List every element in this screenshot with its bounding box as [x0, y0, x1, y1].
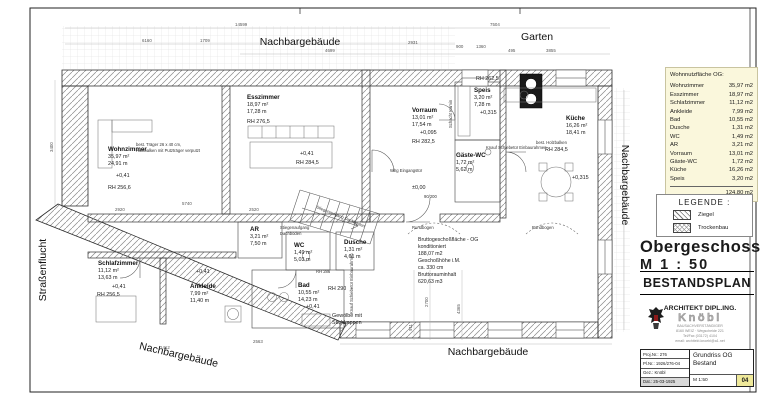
room-rh: RH 290: [328, 286, 346, 292]
arch-label-2: Rundbogen: [532, 225, 554, 230]
title-block: Proj.Nr.: 276 Pl.Nr.: 1926/276-04 Gez.: …: [640, 349, 754, 387]
room-perimeter: 24,91 m: [108, 161, 128, 167]
row-value: 10,55 m2: [729, 116, 753, 124]
area-table: Wohnnutzfläche OG: Wohnzimmer35,97 m2 Es…: [665, 67, 758, 202]
row-label: Vorraum: [670, 150, 692, 158]
label-nachbargebaeude-bottom-center: Nachbargebäude: [448, 346, 529, 358]
rh-286: RH 286: [316, 269, 331, 274]
ziegel-hatch-swatch: [673, 210, 691, 220]
room-area: 35,97 m²: [108, 154, 129, 160]
dim-label: 6160: [142, 38, 152, 43]
room-level: +0,41: [116, 173, 130, 179]
room-perimeter: 18,41 m: [566, 130, 586, 136]
wall-ess-vorraum: [362, 70, 370, 222]
wall-west: [62, 86, 88, 206]
wall-schlaf-n: [88, 252, 236, 258]
architect-line6: email: architekt.knoebl@a1.net: [646, 339, 754, 344]
row-value: 3,21 m2: [732, 141, 753, 149]
legend-label: Trockenbau: [698, 225, 728, 231]
room-rh: RH 282,5: [412, 139, 435, 145]
room-name: AR: [250, 226, 259, 233]
room-area: 1,31 m²: [344, 247, 362, 253]
dim-label: 5740: [182, 201, 192, 206]
door-size: 90/200: [424, 194, 437, 199]
room-area: 1,72 m²: [456, 160, 474, 166]
datum: Dat.: 25-03-1925: [641, 378, 689, 386]
table-row: Gäste-WC1,72 m2: [670, 158, 753, 166]
vault-note-2: Stichkappen: [332, 320, 362, 326]
room-name: Esszimmer: [247, 94, 280, 101]
room-perimeter: 7,28 m: [474, 102, 491, 108]
table-row: Dusche1,31 m2: [670, 124, 753, 132]
dim-label: 4699: [325, 48, 335, 53]
stair-label-2: Dachboden: [280, 231, 302, 236]
row-value: 35,97 m2: [729, 82, 753, 90]
drawing-name-line1: Grundriss OG: [693, 352, 750, 360]
dim-label: 1709: [200, 38, 210, 43]
drawing-name-line2: Bestand: [693, 360, 750, 368]
row-label: Bad: [670, 116, 680, 124]
room-perimeter: 17,54 m: [412, 122, 432, 128]
dim-label: 911: [408, 323, 413, 331]
room-area: 3,21 m²: [250, 234, 268, 240]
room-perimeter: 5,62 m: [456, 167, 473, 173]
room-name: Bad: [298, 282, 310, 289]
rh-hall: RH 284,5: [296, 160, 319, 166]
room-area: 10,55 m²: [298, 290, 319, 296]
dim-label: 4365: [456, 304, 461, 314]
room-area: 11,12 m²: [98, 268, 119, 274]
table-row: Esszimmer18,97 m2: [670, 91, 753, 99]
row-value: 18,97 m2: [729, 91, 753, 99]
room-name: Gäste-WC: [456, 152, 486, 159]
legend-title: LEGENDE :: [661, 198, 748, 207]
legend-label: Ziegel: [698, 212, 714, 218]
drawing-name: Grundriss OG Bestand: [690, 350, 753, 374]
table-row: Schlafzimmer11,12 m2: [670, 99, 753, 107]
level-hall: +0,41: [300, 151, 314, 157]
row-label: Speis: [670, 175, 685, 183]
row-value: 1,72 m2: [732, 158, 753, 166]
row-value: 13,01 m2: [729, 150, 753, 158]
room-rh: RH 284,5: [545, 147, 568, 153]
row-value: 1,31 m2: [732, 124, 753, 132]
trockenbau-hatch-swatch: [673, 223, 691, 233]
wall-mid: [88, 214, 370, 222]
wall-kueche: [500, 70, 506, 218]
row-value: 7,99 m2: [732, 108, 753, 116]
room-perimeter: 7,50 m: [250, 241, 267, 247]
title-block-drawing: Grundriss OG Bestand M 1:50 04: [690, 350, 753, 386]
title-block-meta: Proj.Nr.: 276 Pl.Nr.: 1926/276-04 Gez.: …: [641, 350, 690, 386]
room-name: Ankleide: [190, 283, 216, 290]
room-perimeter: 5,03 m: [294, 257, 311, 263]
summary-line: Bruttorauminhalt: [418, 272, 457, 278]
crest-shield: [654, 315, 658, 321]
row-label: Ankleide: [670, 108, 692, 116]
dim-label: 2920: [115, 207, 125, 212]
dim-label: 14599: [235, 22, 248, 27]
wall-vorraum-s1: [370, 214, 404, 222]
room-level: +0,41: [306, 304, 320, 310]
table-row: Bad10,55 m2: [670, 116, 753, 124]
table-row: Küche16,26 m2: [670, 166, 753, 174]
dim-label: 3855: [546, 48, 556, 53]
wall-wohn-ess: [222, 86, 230, 214]
summary-line: 188,07 m2: [418, 251, 443, 257]
plan-title-line1: Obergeschoss: [640, 238, 756, 257]
table-row: Vorraum13,01 m2: [670, 150, 753, 158]
room-perimeter: 13,63 m: [98, 275, 118, 281]
room-rh: RH 262,5: [476, 76, 499, 82]
summary-line: Bruttogeschoßfläche - OG: [418, 237, 478, 243]
sliding-door-note-2: Knauf Schiebetür Einbaurahmen: [486, 145, 547, 150]
dim-label: 900: [456, 44, 464, 49]
sliding-door-note-1: Knauf Schiebetür Einbaurahmen: [349, 253, 354, 314]
scale-label: M 1:50: [690, 375, 736, 386]
table-row: Speis3,20 m2: [670, 175, 753, 183]
label-strassenflucht: Straßenflucht: [37, 239, 49, 302]
row-label: Küche: [670, 166, 686, 174]
room-level: +0,315: [480, 110, 497, 116]
area-table-title: Wohnnutzfläche OG:: [670, 71, 753, 79]
room-name: Küche: [566, 115, 585, 122]
level-zero: ±0,00: [412, 185, 425, 191]
dim-label: 1360: [476, 44, 486, 49]
row-label: AR: [670, 141, 678, 149]
label-nachbargebaeude-top: Nachbargebäude: [260, 36, 341, 48]
room-name: Dusche: [344, 239, 367, 246]
room-name: Vorraum: [412, 107, 437, 114]
architect-block: ARCHITEKT DIPL.ING. Knöbl BAUSACHVERSTÄN…: [646, 305, 754, 343]
row-label: Gäste-WC: [670, 158, 697, 166]
label-nachbargebaeude-right: Nachbargebäude: [619, 145, 631, 226]
table-row: AR3,21 m2: [670, 141, 753, 149]
row-label: Schlafzimmer: [670, 99, 705, 107]
summary-line: 620,63 m3: [418, 279, 443, 285]
row-value: 1,49 m2: [732, 133, 753, 141]
neighbour-hatch-top: [62, 26, 455, 69]
room-name: Speis: [474, 87, 491, 94]
sheet-number: 04: [736, 375, 753, 386]
dim-label: 1412: [160, 345, 170, 350]
wall-schlaf-ankleide: [160, 258, 166, 324]
room-level: +0,41: [112, 284, 126, 290]
vault-note-1: Gewölbe mit: [332, 313, 362, 319]
chimney-label: Schacht Kamin: [448, 99, 453, 128]
summary-line: ca. 330 cm: [418, 265, 443, 271]
bestandsplan-stamp: BESTANDSPLAN: [640, 271, 754, 295]
legend-item-trockenbau: Trockenbau: [673, 223, 748, 233]
room-rh: RH 256,6: [108, 185, 131, 191]
room-name: WC: [294, 242, 305, 249]
flue-2: [526, 94, 537, 105]
wall-vorraum-s2: [440, 214, 500, 222]
row-value: 16,26 m2: [729, 166, 753, 174]
room-area: 7,99 m²: [190, 291, 208, 297]
room-level: +0,41: [196, 269, 210, 275]
room-area: 1,49 m²: [294, 250, 312, 256]
table-row: WC1,49 m2: [670, 133, 753, 141]
dim-label: 3400: [49, 142, 54, 152]
room-perimeter: 14,23 m: [298, 297, 318, 303]
eagle-crest-logo: [646, 305, 666, 331]
room-rh: RH 256,5: [97, 292, 120, 298]
room-area: 13,01 m²: [412, 115, 433, 121]
stair-label-1: Stiegenaufgang: [280, 225, 310, 230]
row-label: Wohnzimmer: [670, 82, 704, 90]
room-perimeter: 17,28 m: [247, 109, 267, 115]
row-label: WC: [670, 133, 680, 141]
dim-label: 2700: [424, 297, 429, 307]
proj-nr: Proj.Nr.: 276: [641, 350, 689, 359]
room-level: +0,315: [572, 175, 589, 181]
room-area: 18,97 m²: [247, 102, 268, 108]
row-label: Esszimmer: [670, 91, 699, 99]
dim-label: 2520: [249, 207, 259, 212]
room-level: +0,095: [420, 130, 437, 136]
dim-label: 495: [508, 48, 516, 53]
summary-line: konditioniert: [418, 244, 447, 250]
table-row: Ankleide7,99 m2: [670, 108, 753, 116]
room-name: Schlafzimmer: [98, 260, 139, 267]
room-area: 3,20 m²: [474, 95, 492, 101]
label-garten: Garten: [521, 31, 553, 43]
room-perimeter: 11,40 m: [190, 298, 210, 304]
arch-label-1: Rundbogen: [412, 225, 434, 230]
legend-item-ziegel: Ziegel: [673, 210, 748, 220]
row-label: Dusche: [670, 124, 690, 132]
dim-label: 2931: [408, 40, 418, 45]
room-area: 16,26 m²: [566, 123, 587, 129]
gezeichnet: Gez.: Knöbl: [641, 369, 689, 378]
beam-note-2: Holzbalken mit Putzträger verputzt: [136, 148, 201, 153]
row-value: 11,12 m2: [729, 99, 753, 107]
plan-nr: Pl.Nr.: 1926/276-04: [641, 359, 689, 368]
summary-line: Geschoßhöhe i.M.: [418, 258, 460, 264]
legend: LEGENDE : Ziegel Trockenbau: [656, 194, 753, 237]
beam-note-1: best. Träger 26 x 40 cm,: [136, 142, 181, 147]
table-row: Wohnzimmer35,97 m2: [670, 82, 753, 90]
entry-door-label: Whg Eingangstür: [390, 168, 423, 173]
row-value: 3,20 m2: [732, 175, 753, 183]
dim-label: 7504: [490, 22, 500, 27]
dim-label: 2563: [253, 339, 263, 344]
plan-title: Obergeschoss M 1 : 50: [640, 238, 756, 273]
drawing-sheet: Nachbargebäude Garten Nachbargebäude Nac…: [0, 0, 770, 400]
room-rh: RH 276,5: [247, 119, 270, 125]
